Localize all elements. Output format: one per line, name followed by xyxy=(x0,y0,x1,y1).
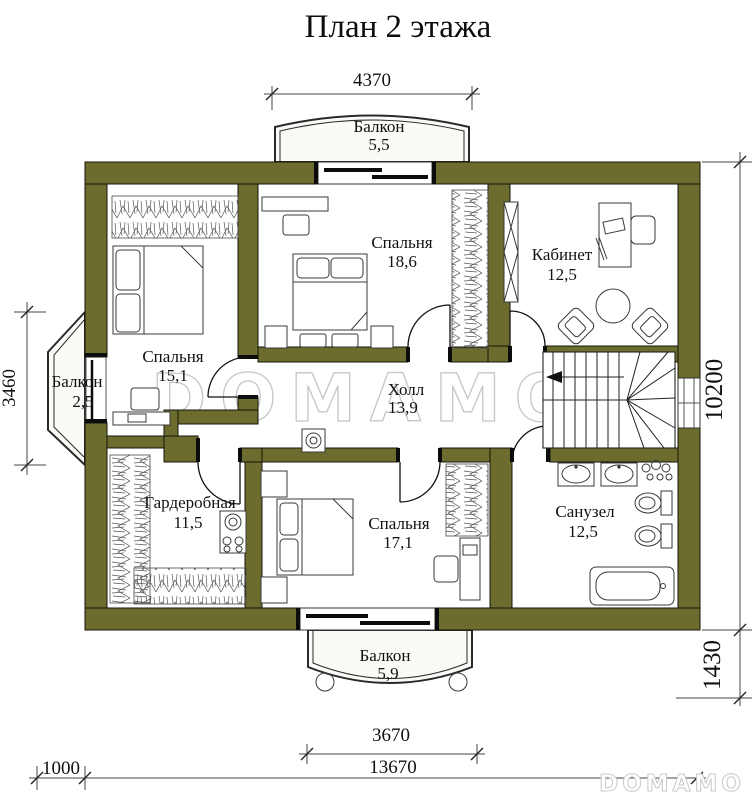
room-label-balcony-bottom: Балкон xyxy=(360,646,411,665)
room-label-balcony-top: Балкон xyxy=(354,117,405,136)
floor-plan-page: План 2 этажа DOMAMO xyxy=(0,0,754,800)
bathtub-icon xyxy=(590,567,674,605)
watermark-corner: DOMAMO xyxy=(599,771,745,797)
sink-icon xyxy=(601,463,637,486)
balcony-column-icon xyxy=(316,673,334,691)
room-area-wardrobe: 11,5 xyxy=(173,513,202,532)
room-label-balcony-left: Балкон xyxy=(52,372,103,391)
floor-plan-drawing: План 2 этажа DOMAMO xyxy=(0,0,754,800)
hall-appliance-icon xyxy=(302,429,325,452)
room-area-bedroom-bottom: 17,1 xyxy=(383,533,413,552)
bed-icon xyxy=(261,471,353,603)
balcony-door-top xyxy=(318,162,432,184)
bed-icon xyxy=(113,246,203,334)
room-label-study: Кабинет xyxy=(532,245,593,264)
room-area-balcony-top: 5,5 xyxy=(368,135,389,154)
door-bedroom-bottom xyxy=(400,462,440,502)
desk-icon xyxy=(596,203,655,267)
room-label-bedroom-bottom: Спальня xyxy=(368,514,429,533)
toilet-icon xyxy=(635,491,672,515)
dimension-offset-left-value: 1000 xyxy=(42,758,80,779)
dimension-top-value: 4370 xyxy=(353,70,391,91)
sink-icon xyxy=(558,463,594,486)
boiler-icon xyxy=(220,511,246,553)
round-table-icon xyxy=(596,289,630,323)
room-label-hall: Холл xyxy=(388,380,425,399)
shaft-icon xyxy=(504,202,518,302)
room-area-balcony-bottom: 5,9 xyxy=(377,664,398,683)
page-title: План 2 этажа xyxy=(305,9,492,45)
bedroom-top-furniture xyxy=(262,190,488,348)
door-study xyxy=(510,311,545,346)
room-area-balcony-left: 2,5 xyxy=(72,392,93,411)
dimension-bottom-total-value: 13670 xyxy=(369,757,417,778)
dimension-bottom-balcony-value: 3670 xyxy=(372,725,410,746)
stairs-icon xyxy=(543,352,675,448)
wardrobe-hatch-icon xyxy=(452,190,488,348)
armchair-icon xyxy=(556,306,596,346)
wardrobe-hatch-icon xyxy=(134,568,246,604)
room-label-wardrobe: Гардеробная xyxy=(144,493,236,512)
room-area-bedroom-left: 15,1 xyxy=(158,366,188,385)
bedroom-bottom-furniture xyxy=(261,464,488,603)
room-label-bedroom-top: Спальня xyxy=(371,233,432,252)
dimension-left-value: 3460 xyxy=(0,369,20,407)
toilet-icon xyxy=(635,524,672,548)
wardrobe-hatch-icon xyxy=(446,464,488,536)
dimension-right-lower-value: 1430 xyxy=(699,640,726,690)
study-furniture xyxy=(504,202,670,346)
wardrobe-hatch-icon xyxy=(112,196,238,238)
armchair-icon xyxy=(630,306,670,346)
room-label-bathroom: Санузел xyxy=(555,502,615,521)
desk-icon xyxy=(434,538,480,600)
desk-icon xyxy=(262,197,328,235)
shelf-items-icon xyxy=(642,461,672,481)
room-area-bedroom-top: 18,6 xyxy=(387,252,417,271)
room-area-hall: 13,9 xyxy=(388,398,418,417)
dimension-left: 3460 xyxy=(0,302,46,475)
dimension-right-value: 10200 xyxy=(701,359,728,422)
dimension-top: 4370 xyxy=(264,70,480,110)
room-area-study: 12,5 xyxy=(547,265,577,284)
balcony-column-icon xyxy=(449,673,467,691)
door-bedroom-top xyxy=(408,305,450,347)
bed-icon xyxy=(265,254,393,348)
balcony-door-bottom xyxy=(300,608,435,630)
room-label-bedroom-left: Спальня xyxy=(142,347,203,366)
room-area-bathroom: 12,5 xyxy=(568,522,598,541)
